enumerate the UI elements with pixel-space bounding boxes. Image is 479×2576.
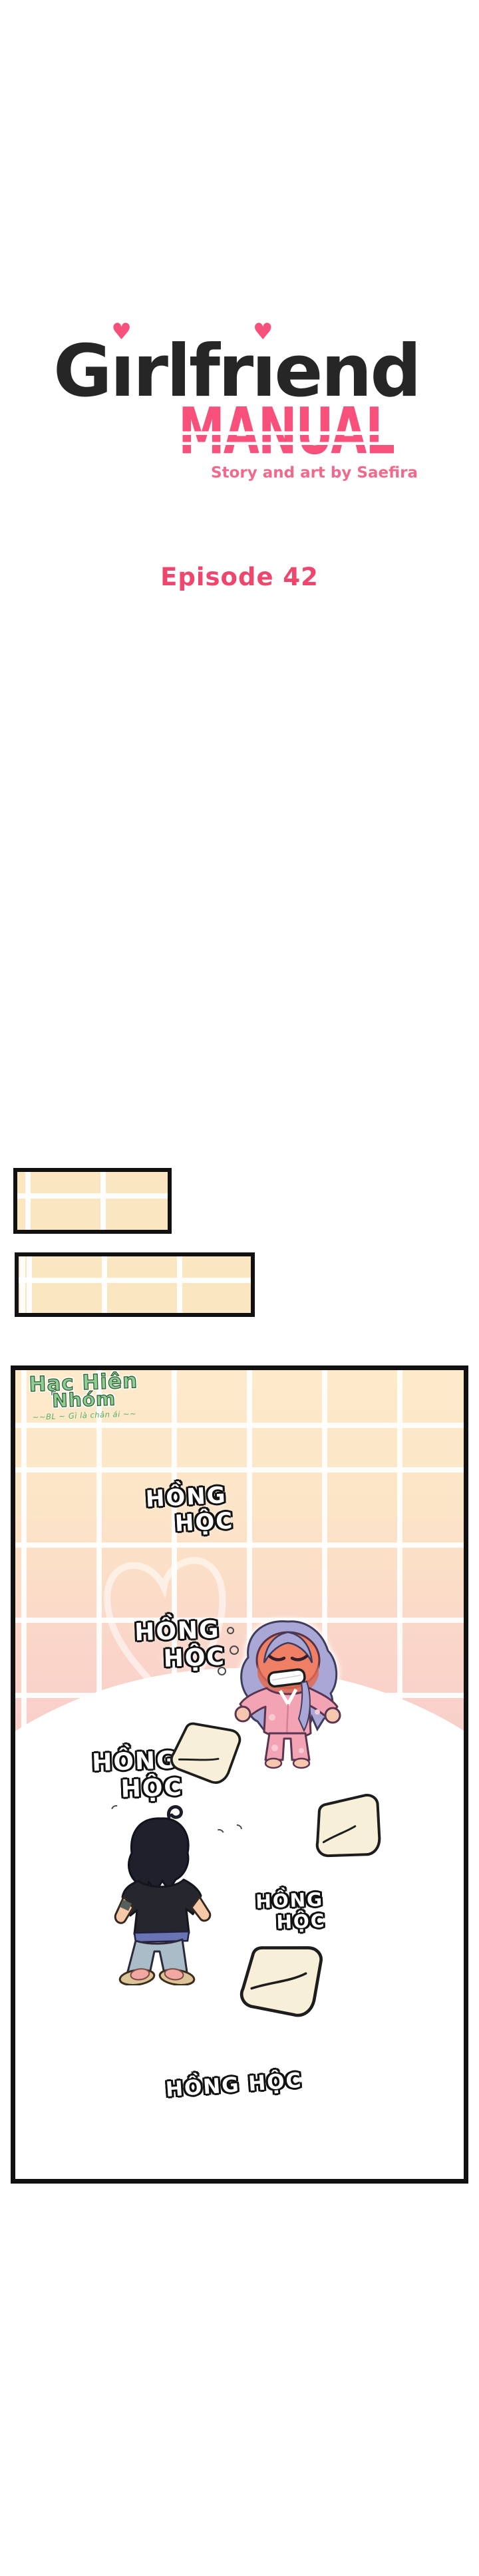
webtoon-page: Gı♥rlfrı♥end MANUAL Story and art by Sae…: [0, 0, 479, 2576]
girl-foot-right: [293, 1759, 309, 1768]
title-part: G: [53, 330, 110, 413]
comic-panel: Hạc Hiên Nhóm ~~BL ~ Gì là chân ái ~~ HỒ…: [11, 1365, 468, 2184]
girl-pajama-star: [299, 1748, 304, 1753]
girl-fist-left: [236, 1707, 250, 1721]
girl-gritted-teeth: [268, 1669, 305, 1687]
effort-mark: [227, 1627, 234, 1634]
girl-pajama-star: [271, 1745, 278, 1751]
girl-pajama-star: [315, 1709, 320, 1715]
effort-mark: [218, 1667, 226, 1675]
girl-pajama-star: [269, 1714, 275, 1721]
sfx-panting: HỒNG HỘC: [134, 1616, 226, 1674]
effort-mark: [230, 1646, 239, 1655]
girl-character: [232, 1618, 343, 1769]
heart-icon: ♥: [253, 321, 273, 343]
pillow: [236, 1939, 327, 2023]
author-byline: Story and art by Saefira: [211, 464, 418, 482]
girl-pajama-top: [240, 1688, 337, 1738]
title-dotless-i: ı♥: [110, 330, 133, 413]
scanlation-logo: Hạc Hiên Nhóm ~~BL ~ Gì là chân ái ~~: [20, 1371, 148, 1422]
girl-foot-left: [265, 1759, 281, 1768]
boy-hair-curl: [168, 1807, 181, 1818]
heart-icon: ♥: [111, 321, 131, 343]
teaser-panel-small: [13, 1168, 172, 1234]
sfx-panting: HỒNG HỘC: [255, 1889, 326, 1934]
boy-character: [108, 1802, 216, 1985]
episode-label: Episode 42: [0, 563, 479, 591]
teaser-panel-wide: [15, 1252, 255, 1317]
sfx-panting: HỒNG HỘC: [145, 1483, 234, 1539]
girl-fist-right: [325, 1708, 340, 1723]
series-subtitle: MANUAL: [178, 394, 394, 469]
pillow: [306, 1791, 390, 1866]
